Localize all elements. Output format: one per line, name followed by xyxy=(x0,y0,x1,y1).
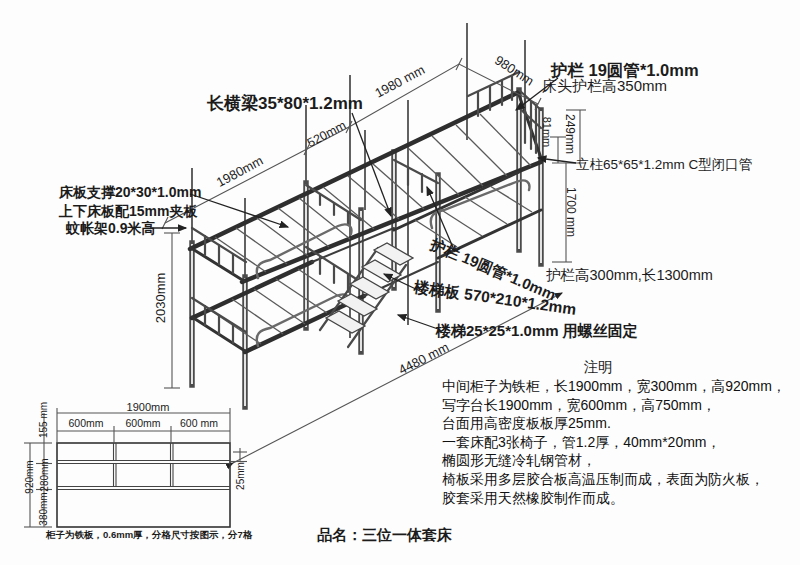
label-head-guardrail: 床头护栏高350mm xyxy=(542,78,667,95)
note-line: 椅板采用多层胶合板高温压制而成，表面为防火板， xyxy=(442,471,787,490)
cabinet-dim-height: 920mm xyxy=(24,460,35,493)
cabinet-dim-col: 600mm xyxy=(68,418,103,430)
label-board-ply: 上下床板配15mm夹板 xyxy=(59,204,197,219)
cabinet-dim-width: 1900mm xyxy=(127,401,170,413)
note-line: 中间柜子为铁柜，长1900mm，宽300mm，高920mm， xyxy=(442,378,787,397)
dim-bunk-height: 2030mm xyxy=(154,273,168,324)
note-line: 胶套采用天然橡胶制作而成。 xyxy=(442,490,787,509)
cabinet-dim-row-top: 155 mm xyxy=(38,402,49,438)
cabinet-dim-row-bottom: 380mm xyxy=(38,492,49,525)
label-stair-frame: 楼梯25*25*1.0mm 用螺丝固定 xyxy=(436,323,638,340)
spec-drawing-canvas: 长横梁35*80*1.2mm 床板支撑20*30*1.0mm 上下床板配15mm… xyxy=(0,0,800,565)
cabinet-dim-col: 600mm xyxy=(125,418,160,430)
label-mosquito-frame: 蚊帐架0.9米高 xyxy=(66,221,155,236)
note-line: 台面用高密度板板厚25mm. xyxy=(442,415,787,434)
dim-rail-offset: 81mm xyxy=(541,117,553,148)
dim-clear-height: 1700 mm xyxy=(563,187,576,237)
cabinet-dim-row-mid: 280mm xyxy=(39,458,50,491)
label-long-beam: 长横梁35*80*1.2mm xyxy=(207,95,363,114)
note-line: 写字台长1900mm，宽600mm，高750mm， xyxy=(442,397,787,416)
product-name: 品名：三位一体套床 xyxy=(317,527,452,544)
label-board-support: 床板支撑20*30*1.0mm xyxy=(59,185,201,200)
label-post: 立柱65*65*1.2mm C型闭口管 xyxy=(576,158,752,173)
note-line: 椭圆形无缝冷轧钢管材， xyxy=(442,452,787,471)
cabinet-caption: 柜子为铁板，0.6mm厚，分格尺寸按图示，分7格 xyxy=(46,530,252,540)
top-deck-slats xyxy=(215,114,531,272)
cabinet-dim-col: 600 mm xyxy=(180,418,218,430)
dim-post-top-extension: 249mm xyxy=(562,114,575,154)
notes-title: 注明 xyxy=(442,360,754,376)
label-guardrail-lower: 护栏高300mm,长1300mm xyxy=(546,268,713,284)
notes-block: 中间柜子为铁柜，长1900mm，宽300mm，高920mm， 写字台长1900m… xyxy=(442,378,787,508)
cabinet-dim-shelf-thickness: 25mm xyxy=(235,462,246,490)
note-line: 一套床配3张椅子，管1.2厚，40mm*20mm， xyxy=(442,434,787,453)
